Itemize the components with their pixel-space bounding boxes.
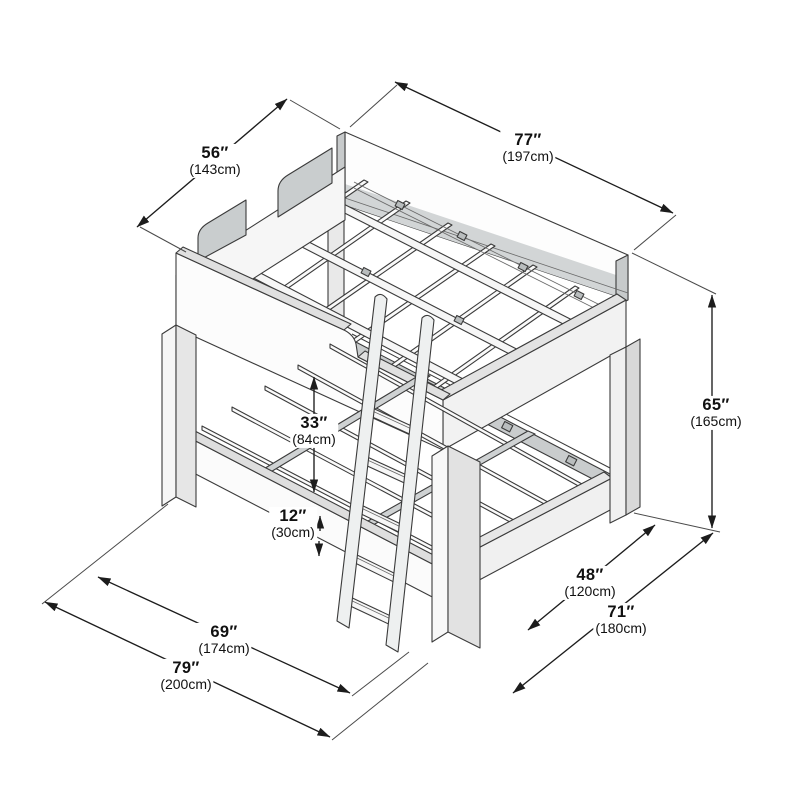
- dimension-value-inches: 65″: [690, 396, 741, 414]
- dimension-value-inches: 71″: [595, 603, 646, 621]
- dimension-value-cm: (30cm): [271, 525, 315, 541]
- dimension-label-48: 48″ (120cm): [562, 566, 617, 600]
- dimension-label-12: 12″ (30cm): [269, 507, 317, 541]
- witness-line: [42, 504, 168, 604]
- witness-line: [352, 652, 409, 696]
- dimension-value-inches: 56″: [189, 144, 240, 162]
- dimension-value-cm: (165cm): [690, 414, 741, 430]
- dimension-value-inches: 79″: [160, 659, 211, 677]
- witness-line: [634, 215, 676, 250]
- bed-diagram-canvas: [0, 0, 800, 800]
- dimension-label-69: 69″ (174cm): [196, 623, 251, 657]
- front-post: [432, 446, 480, 648]
- dimension-value-cm: (197cm): [502, 149, 553, 165]
- dimension-value-inches: 12″: [271, 507, 315, 525]
- dimension-value-inches: 69″: [198, 623, 249, 641]
- witness-line: [634, 513, 720, 532]
- dimension-value-inches: 77″: [502, 131, 553, 149]
- left-post: [162, 325, 196, 507]
- witness-line: [632, 253, 716, 294]
- dimension-label-71: 71″ (180cm): [593, 603, 648, 637]
- witness-line: [290, 100, 340, 129]
- dimension-value-cm: (174cm): [198, 641, 249, 657]
- witness-line: [350, 85, 397, 127]
- right-post: [610, 339, 640, 523]
- dimension-label-65: 65″ (165cm): [688, 396, 743, 430]
- dimension-value-cm: (84cm): [292, 432, 336, 448]
- witness-line: [140, 227, 186, 252]
- dimension-value-cm: (180cm): [595, 621, 646, 637]
- bunk-bed-dimension-diagram: 56″ (143cm) 77″ (197cm) 65″ (165cm) 33″ …: [0, 0, 800, 800]
- dimension-value-inches: 33″: [292, 414, 336, 432]
- dimension-value-cm: (143cm): [189, 162, 240, 178]
- dimension-label-56: 56″ (143cm): [187, 144, 242, 178]
- dimension-value-cm: (120cm): [564, 584, 615, 600]
- dimension-value-cm: (200cm): [160, 677, 211, 693]
- dimension-value-inches: 48″: [564, 566, 615, 584]
- dimension-label-79: 79″ (200cm): [158, 659, 213, 693]
- dimension-label-77: 77″ (197cm): [500, 131, 555, 165]
- dimension-label-33: 33″ (84cm): [290, 414, 338, 448]
